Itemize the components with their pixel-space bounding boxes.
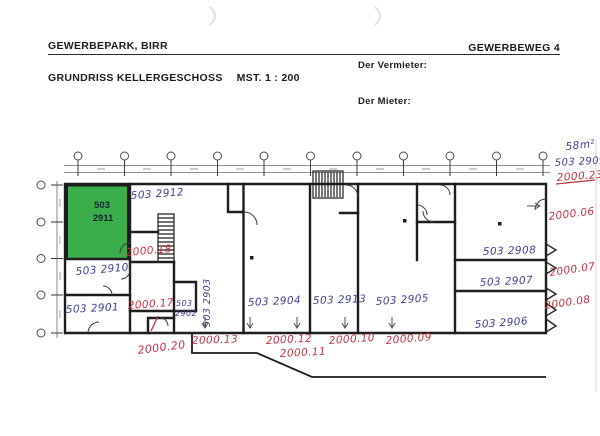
mark-2000-23: 2000.23 bbox=[556, 169, 600, 184]
area-note-58m2: 58m² bbox=[565, 138, 596, 153]
mark-2000-18: 2000.18 bbox=[125, 243, 172, 259]
room-2912-label: 503 2912 bbox=[130, 186, 184, 202]
mark-2000-20: 2000.20 bbox=[137, 338, 187, 357]
room-2904-label: 503 2904 bbox=[248, 294, 302, 309]
mark-2000-07: 2000.07 bbox=[549, 261, 596, 279]
mark-2000-13: 2000.13 bbox=[192, 333, 239, 347]
floor-plan-svg: 503 2911 503 2912 503 2910 503 2901 503 … bbox=[0, 0, 600, 436]
room-2913-label: 503 2913 bbox=[313, 293, 367, 307]
room-2903-label: 503 2903 bbox=[202, 278, 213, 327]
room-2905-label: 503 2905 bbox=[375, 292, 429, 308]
grid-bubbles-top bbox=[74, 152, 547, 160]
room-2911-line2: 2911 bbox=[93, 213, 114, 224]
exit-arrows bbox=[202, 317, 395, 328]
mark-2000-10: 2000.10 bbox=[328, 332, 375, 347]
mark-2000-11: 2000.11 bbox=[280, 346, 327, 360]
room-2902-label-line1: 503 bbox=[176, 299, 192, 308]
room-2911-line1: 503 bbox=[94, 200, 110, 211]
room-2906-label: 503 2906 bbox=[474, 315, 528, 331]
mark-2000-12: 2000.12 bbox=[266, 333, 313, 347]
binder-mark-right bbox=[375, 7, 380, 25]
column-dots bbox=[250, 219, 502, 260]
mark-2000-06: 2000.06 bbox=[548, 205, 595, 223]
room-2910-label: 503 2910 bbox=[75, 261, 129, 278]
room-2901-label: 503 2901 bbox=[66, 301, 120, 316]
top-dimension-line bbox=[64, 152, 550, 176]
room-2909-label: 503 2909 bbox=[555, 155, 600, 169]
room-2908-label: 503 2908 bbox=[483, 244, 537, 258]
scanned-floorplan-page: GEWERBEPARK, BIRR GEWERBEWEG 4 GRUNDRISS… bbox=[0, 0, 600, 436]
red-annotations: 2000.18 2000.17 2000.20 2000.13 2000.12 … bbox=[125, 169, 600, 360]
mark-2000-17: 2000.17 bbox=[127, 297, 174, 312]
binder-mark-left bbox=[210, 7, 215, 25]
room-2907-label: 503 2907 bbox=[480, 274, 534, 289]
grid-bubbles-left bbox=[37, 181, 45, 337]
room-2902-label-line2: 2902 bbox=[175, 309, 197, 318]
right-wall-door-marks bbox=[546, 244, 556, 332]
left-dimension-line bbox=[37, 181, 63, 338]
door-arrow-right bbox=[527, 203, 540, 209]
